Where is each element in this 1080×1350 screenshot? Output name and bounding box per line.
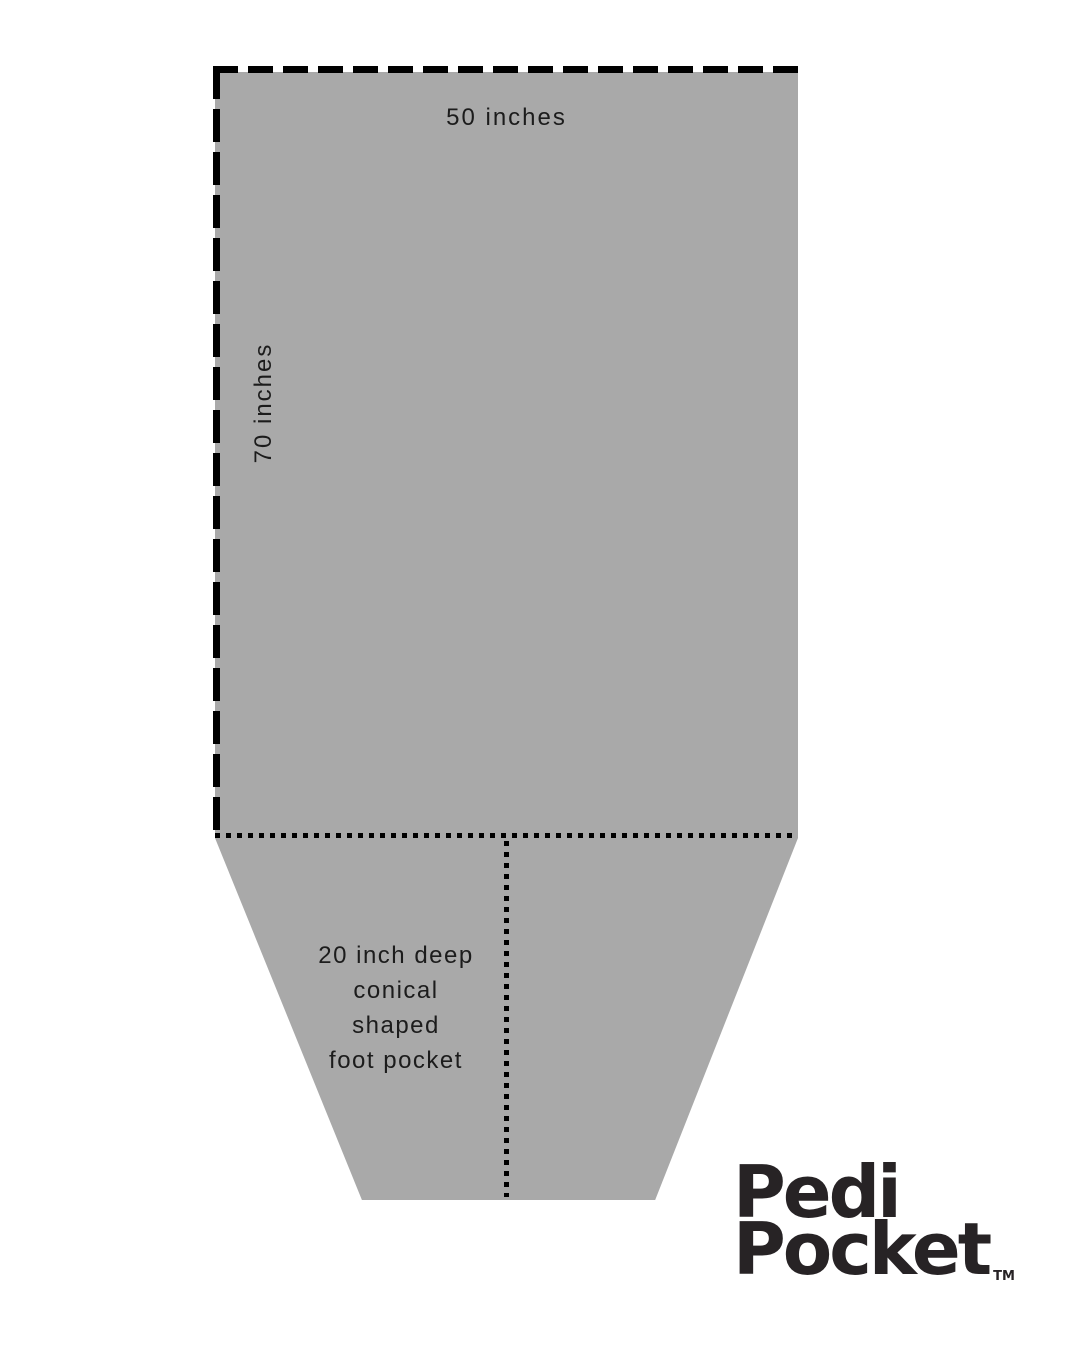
logo-word-pocket: PocketTM xyxy=(733,1221,1015,1305)
foot-pocket-description-line: shaped xyxy=(246,1008,546,1043)
trademark-symbol: TM xyxy=(993,1269,1015,1284)
top-dashed-edge-line xyxy=(213,66,799,73)
foot-pocket-description-line: conical xyxy=(246,973,546,1008)
blanket-body-shape xyxy=(215,72,798,838)
pedipocket-logo: Pedi PocketTM xyxy=(733,1164,1015,1305)
logo-word-pocket-text: Pocket xyxy=(733,1207,989,1291)
height-dimension-label: 70 inches xyxy=(250,343,278,464)
left-dashed-edge-line xyxy=(213,66,220,838)
blanket-dimension-diagram: 50 inches 70 inches 20 inch deep conical… xyxy=(0,0,1080,1350)
foot-pocket-description: 20 inch deep conical shaped foot pocket xyxy=(246,938,546,1078)
foot-pocket-description-line: foot pocket xyxy=(246,1043,546,1078)
pocket-top-dotted-seam-line xyxy=(215,833,798,838)
foot-pocket-description-line: 20 inch deep xyxy=(246,938,546,973)
width-dimension-label: 50 inches xyxy=(215,104,798,132)
